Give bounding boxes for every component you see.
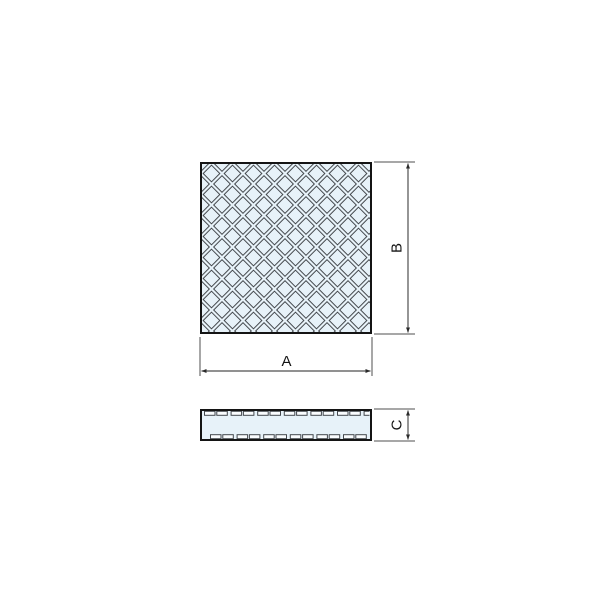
- tread-dash: [249, 435, 260, 439]
- tread-dash: [284, 411, 295, 415]
- tread-dash: [276, 435, 287, 439]
- tread-dash: [223, 435, 234, 439]
- tread-dash: [205, 411, 216, 415]
- tread-dash: [317, 435, 328, 439]
- height-label: B: [389, 243, 406, 253]
- front-view: [201, 163, 371, 333]
- tread-dash: [323, 411, 334, 415]
- tread-dash: [329, 435, 340, 439]
- tread-dash: [364, 411, 375, 415]
- tread-dash: [264, 435, 275, 439]
- side-view: [201, 410, 387, 440]
- tread-dash: [376, 411, 387, 415]
- dimension-thickness: C: [374, 409, 415, 441]
- tread-dash: [217, 411, 228, 415]
- tread-dash: [303, 435, 314, 439]
- tread-dash: [237, 435, 248, 439]
- tread-dash: [258, 411, 269, 415]
- tread-dash: [270, 411, 281, 415]
- tread-dash: [211, 435, 222, 439]
- thickness-label: C: [389, 419, 406, 430]
- front-view-tread: [201, 163, 371, 333]
- dimension-width: A: [200, 337, 372, 376]
- tread-dash: [344, 435, 355, 439]
- tread-dash: [290, 435, 301, 439]
- dimension-height: B: [374, 162, 415, 334]
- tread-dash: [338, 411, 349, 415]
- width-label: A: [281, 353, 291, 370]
- tread-dash: [356, 435, 367, 439]
- tread-dash: [243, 411, 254, 415]
- pad-dimension-drawing: B A C: [0, 0, 600, 600]
- tread-dash: [231, 411, 242, 415]
- tread-dash: [350, 411, 361, 415]
- technical-drawing-canvas: B A C: [0, 0, 600, 600]
- tread-dash: [297, 411, 308, 415]
- tread-dash: [311, 411, 322, 415]
